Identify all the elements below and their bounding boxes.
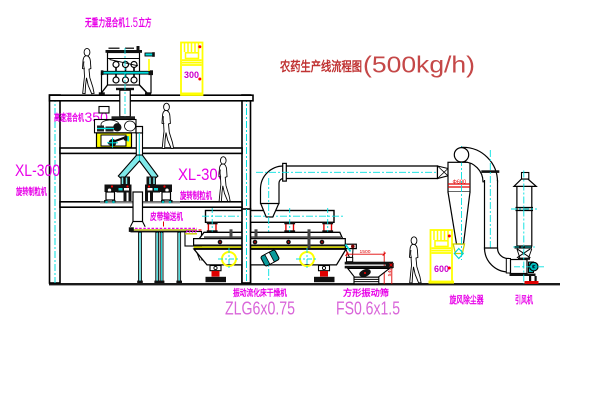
svg-text:立方: 立方 bbox=[139, 16, 152, 29]
svg-text:农药生产线流程图: 农药生产线流程图 bbox=[279, 59, 362, 74]
svg-text:旋转制粒机: 旋转制粒机 bbox=[179, 190, 212, 202]
svg-text:1500: 1500 bbox=[360, 249, 371, 255]
svg-text:Φ600: Φ600 bbox=[453, 180, 467, 186]
svg-text:FS0.6x1.5: FS0.6x1.5 bbox=[336, 299, 400, 319]
svg-text:旋风除尘器: 旋风除尘器 bbox=[449, 294, 484, 307]
svg-text:方形振动筛: 方形振动筛 bbox=[343, 287, 389, 298]
svg-text:引风机: 引风机 bbox=[515, 294, 533, 307]
svg-text:600: 600 bbox=[434, 264, 449, 274]
svg-text:(500kg/h): (500kg/h) bbox=[363, 52, 475, 78]
svg-text:无重力混合机: 无重力混合机 bbox=[84, 16, 125, 29]
svg-text:旋转制粒机: 旋转制粒机 bbox=[15, 186, 47, 198]
svg-text:300: 300 bbox=[184, 70, 199, 80]
svg-text:高速混合机: 高速混合机 bbox=[54, 112, 84, 124]
svg-text:1.5: 1.5 bbox=[125, 14, 138, 30]
svg-text:XL-300: XL-300 bbox=[15, 161, 60, 180]
svg-text:ZLG6x0.75: ZLG6x0.75 bbox=[225, 299, 295, 319]
svg-text:皮带输送机: 皮带输送机 bbox=[149, 211, 183, 223]
svg-text:振动流化床干燥机: 振动流化床干燥机 bbox=[233, 287, 287, 298]
